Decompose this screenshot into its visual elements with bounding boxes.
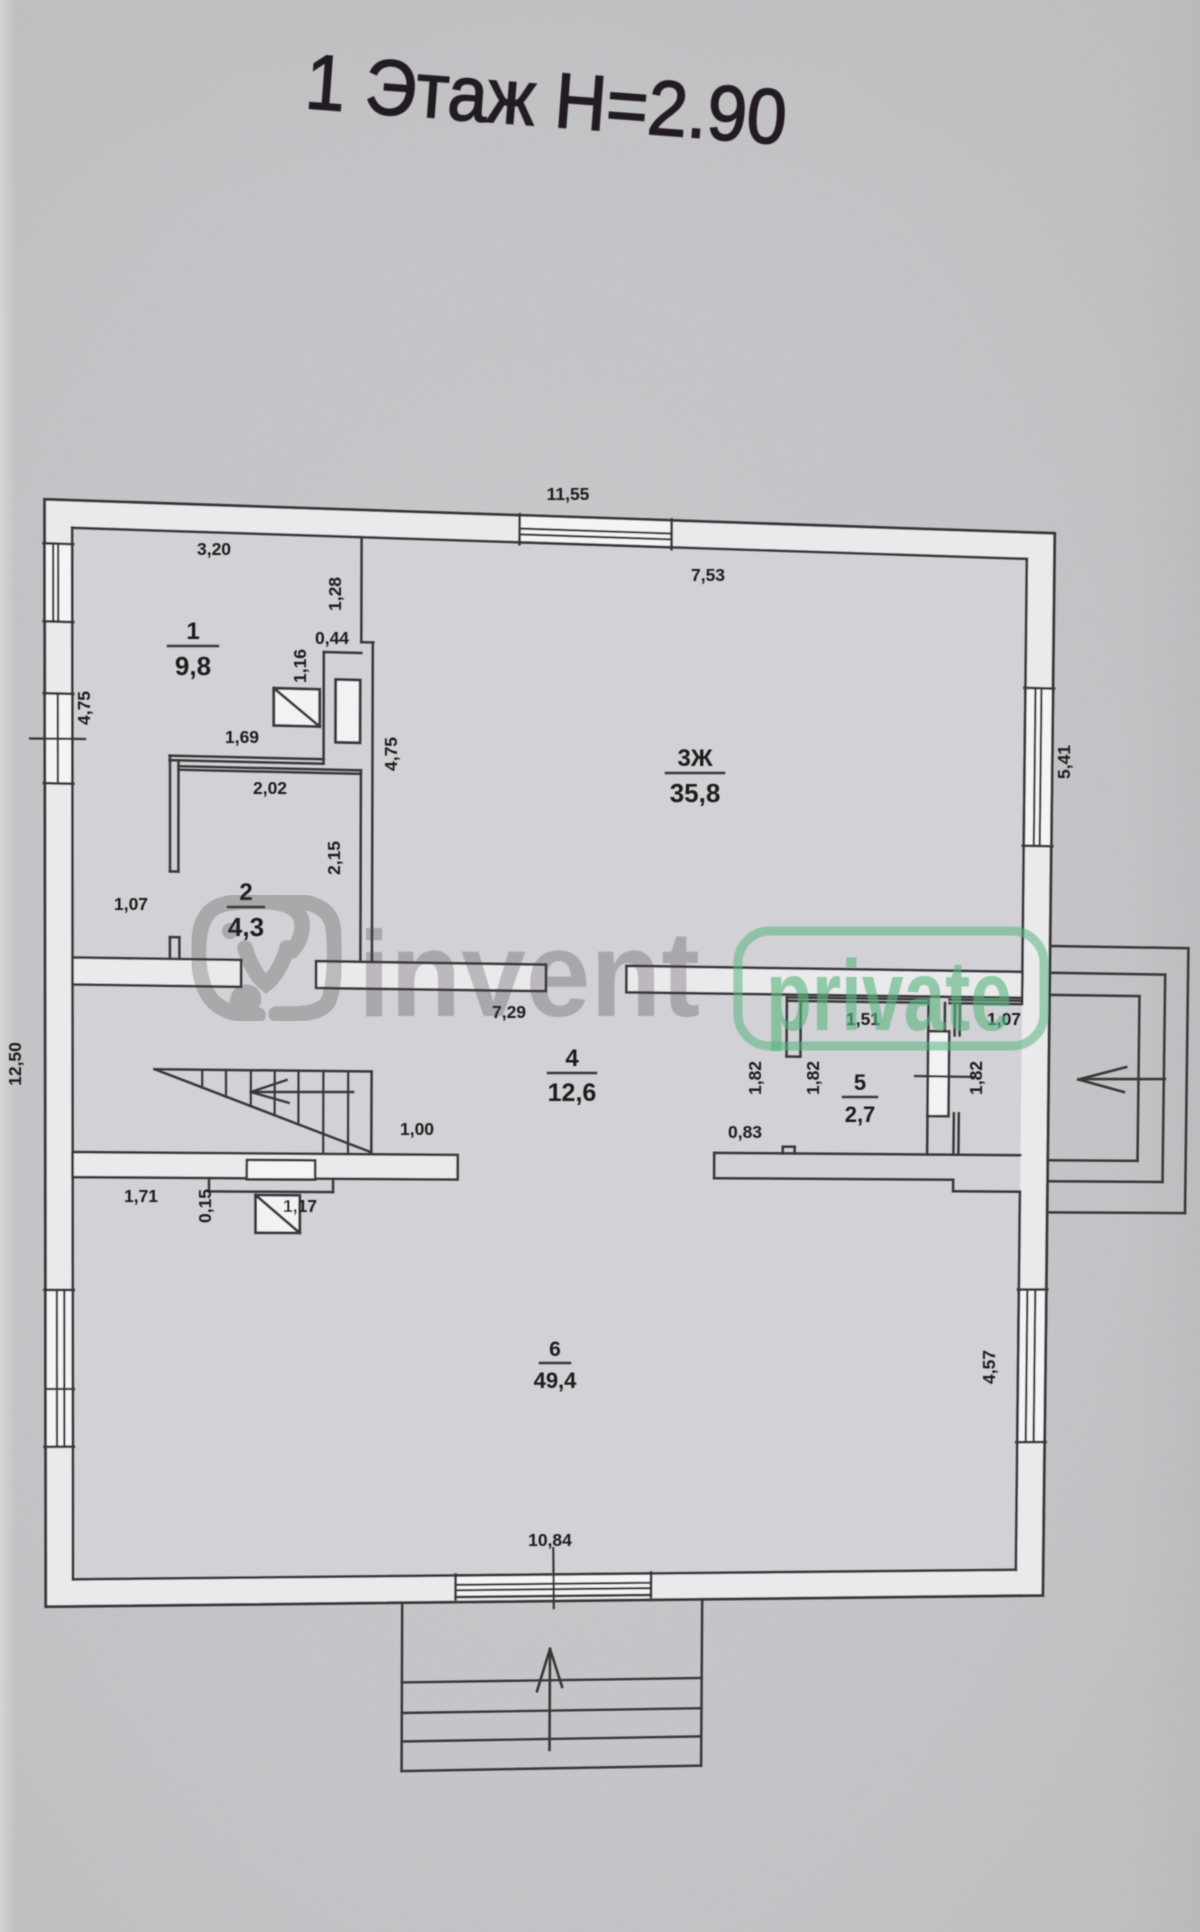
svg-text:7,53: 7,53 bbox=[691, 565, 725, 585]
svg-text:6: 6 bbox=[549, 1338, 561, 1361]
svg-text:0,44: 0,44 bbox=[315, 628, 349, 648]
svg-text:4: 4 bbox=[565, 1045, 579, 1072]
svg-text:4,57: 4,57 bbox=[979, 1350, 999, 1384]
svg-text:1,82: 1,82 bbox=[803, 1061, 823, 1095]
svg-text:1,07: 1,07 bbox=[114, 894, 148, 914]
svg-text:5: 5 bbox=[854, 1070, 866, 1095]
svg-text:4,75: 4,75 bbox=[381, 737, 401, 771]
svg-text:11,55: 11,55 bbox=[547, 484, 590, 504]
svg-text:1,16: 1,16 bbox=[290, 649, 310, 683]
svg-text:2,15: 2,15 bbox=[324, 841, 344, 875]
svg-text:1,17: 1,17 bbox=[283, 1196, 317, 1216]
svg-text:2,02: 2,02 bbox=[253, 778, 287, 798]
svg-text:3Ж: 3Ж bbox=[677, 745, 712, 772]
svg-text:1: 1 bbox=[186, 618, 199, 645]
svg-text:12,50: 12,50 bbox=[5, 1042, 25, 1086]
svg-text:invent: invent bbox=[358, 906, 700, 1042]
svg-text:49,4: 49,4 bbox=[534, 1368, 578, 1393]
svg-text:1,82: 1,82 bbox=[966, 1061, 986, 1095]
svg-text:2,7: 2,7 bbox=[845, 1102, 876, 1127]
svg-text:9,8: 9,8 bbox=[175, 651, 211, 681]
svg-text:10,84: 10,84 bbox=[528, 1530, 572, 1550]
svg-text:1,00: 1,00 bbox=[400, 1119, 434, 1139]
svg-text:5,41: 5,41 bbox=[1054, 745, 1074, 779]
svg-text:1,69: 1,69 bbox=[225, 727, 259, 747]
svg-text:private: private bbox=[766, 940, 1012, 1052]
svg-text:35,8: 35,8 bbox=[670, 778, 721, 808]
svg-text:1,71: 1,71 bbox=[124, 1186, 158, 1206]
svg-text:1,28: 1,28 bbox=[325, 577, 345, 611]
svg-text:0,83: 0,83 bbox=[728, 1122, 762, 1142]
svg-text:0,15: 0,15 bbox=[195, 1189, 215, 1223]
svg-text:1,82: 1,82 bbox=[745, 1061, 765, 1095]
svg-text:3,20: 3,20 bbox=[197, 539, 231, 559]
svg-text:12,6: 12,6 bbox=[548, 1079, 597, 1107]
svg-text:4,75: 4,75 bbox=[74, 691, 94, 725]
